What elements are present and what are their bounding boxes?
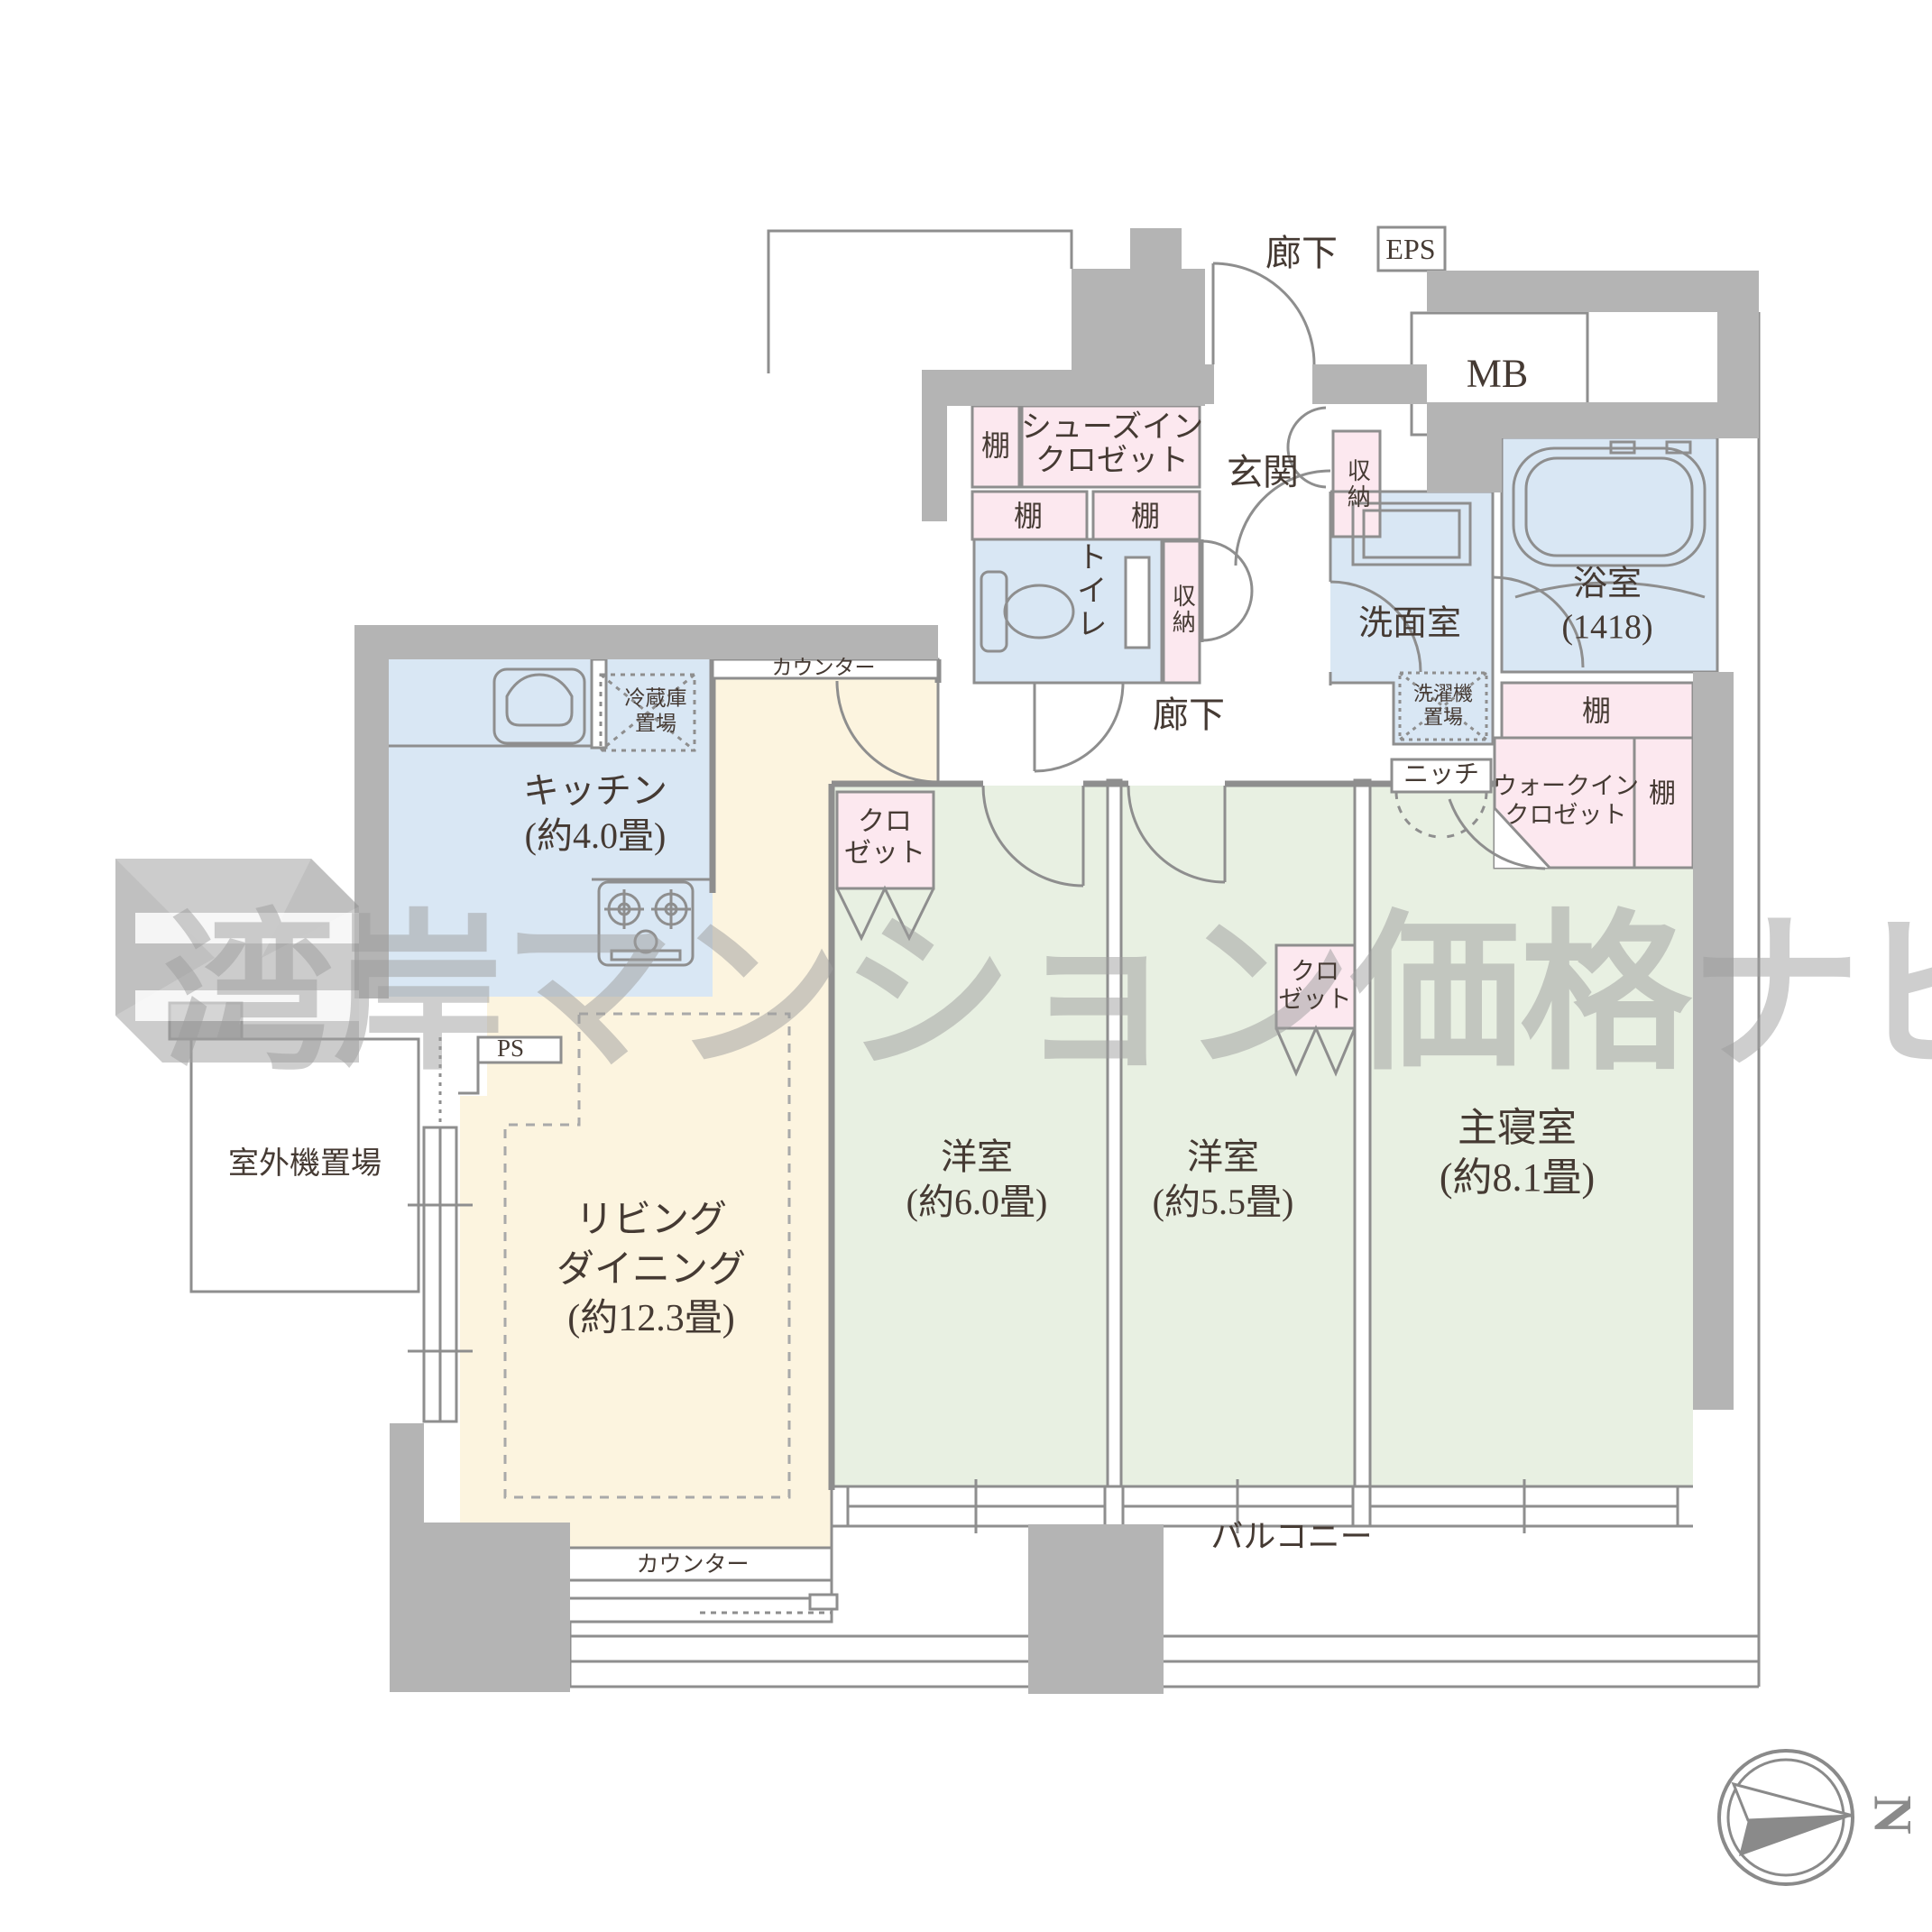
wic-shelf-label: 棚 — [1649, 777, 1676, 811]
toilet-label: トイレ — [1069, 541, 1108, 641]
entrance-door-arc — [1213, 263, 1314, 364]
compass-icon — [1719, 1751, 1853, 1884]
ps-label: PS — [497, 1034, 524, 1064]
ld-south-window — [568, 1580, 832, 1622]
kitchen-label: キッチン (約4.0畳) — [523, 768, 667, 859]
living-dining-label: リビング ダイニング (約12.3畳) — [557, 1196, 746, 1344]
bath-shelf-label: 棚 — [1582, 693, 1611, 729]
genkan-label: 玄関 — [1227, 450, 1299, 495]
counter-bottom-label: カウンター — [636, 1550, 749, 1578]
balcony-label: バルコニー — [1210, 1517, 1372, 1558]
master-bedroom-label: 主寝室 (約8.1畳) — [1440, 1103, 1595, 1202]
niche-label: ニッチ — [1403, 759, 1479, 791]
counter-top-label: カウンター — [772, 656, 876, 682]
floor-plan: 廊下 EPS MB シューズイン クロゼット 棚 棚 棚 玄関 収納 収納 廊下… — [0, 0, 1932, 1932]
bedroom1-label: 洋室 (約6.0畳) — [906, 1135, 1048, 1225]
watermark-text: 湾岸マンション価格ナビ — [163, 855, 1932, 1103]
shoes-closet-label: シューズイン クロゼット — [1021, 411, 1203, 479]
eps-label: EPS — [1385, 231, 1435, 267]
bedroom2-label: 洋室 (約5.5畳) — [1153, 1135, 1294, 1225]
fridge-label: 冷蔵庫 置場 — [625, 685, 687, 735]
shelf-a-label: 棚 — [981, 428, 1010, 464]
mb-label: MB — [1467, 349, 1528, 399]
washroom-label: 洗面室 — [1358, 603, 1461, 646]
closet1-label: クロ ゼット — [844, 807, 925, 869]
compass-north-label: N — [1862, 1795, 1924, 1834]
bathroom-label: 浴室 (1418) — [1561, 564, 1652, 649]
shelf-c-label: 棚 — [1131, 498, 1160, 534]
closet2-label: クロ ゼット — [1279, 958, 1352, 1014]
laundry-label: 洗濯機 置場 — [1413, 683, 1473, 731]
wic-label: ウォークイン クロゼット — [1493, 772, 1639, 831]
shelf-b-label: 棚 — [1014, 498, 1043, 534]
toilet-door-arc — [1035, 683, 1123, 771]
common-corridor-label: 廊下 — [1265, 231, 1338, 276]
storage-hall-label: 収納 — [1167, 584, 1197, 636]
outdoor-unit-label: 室外機置場 — [228, 1145, 382, 1184]
storage-entrance-label: 収納 — [1342, 458, 1372, 511]
inner-corridor-label: 廊下 — [1153, 693, 1225, 738]
